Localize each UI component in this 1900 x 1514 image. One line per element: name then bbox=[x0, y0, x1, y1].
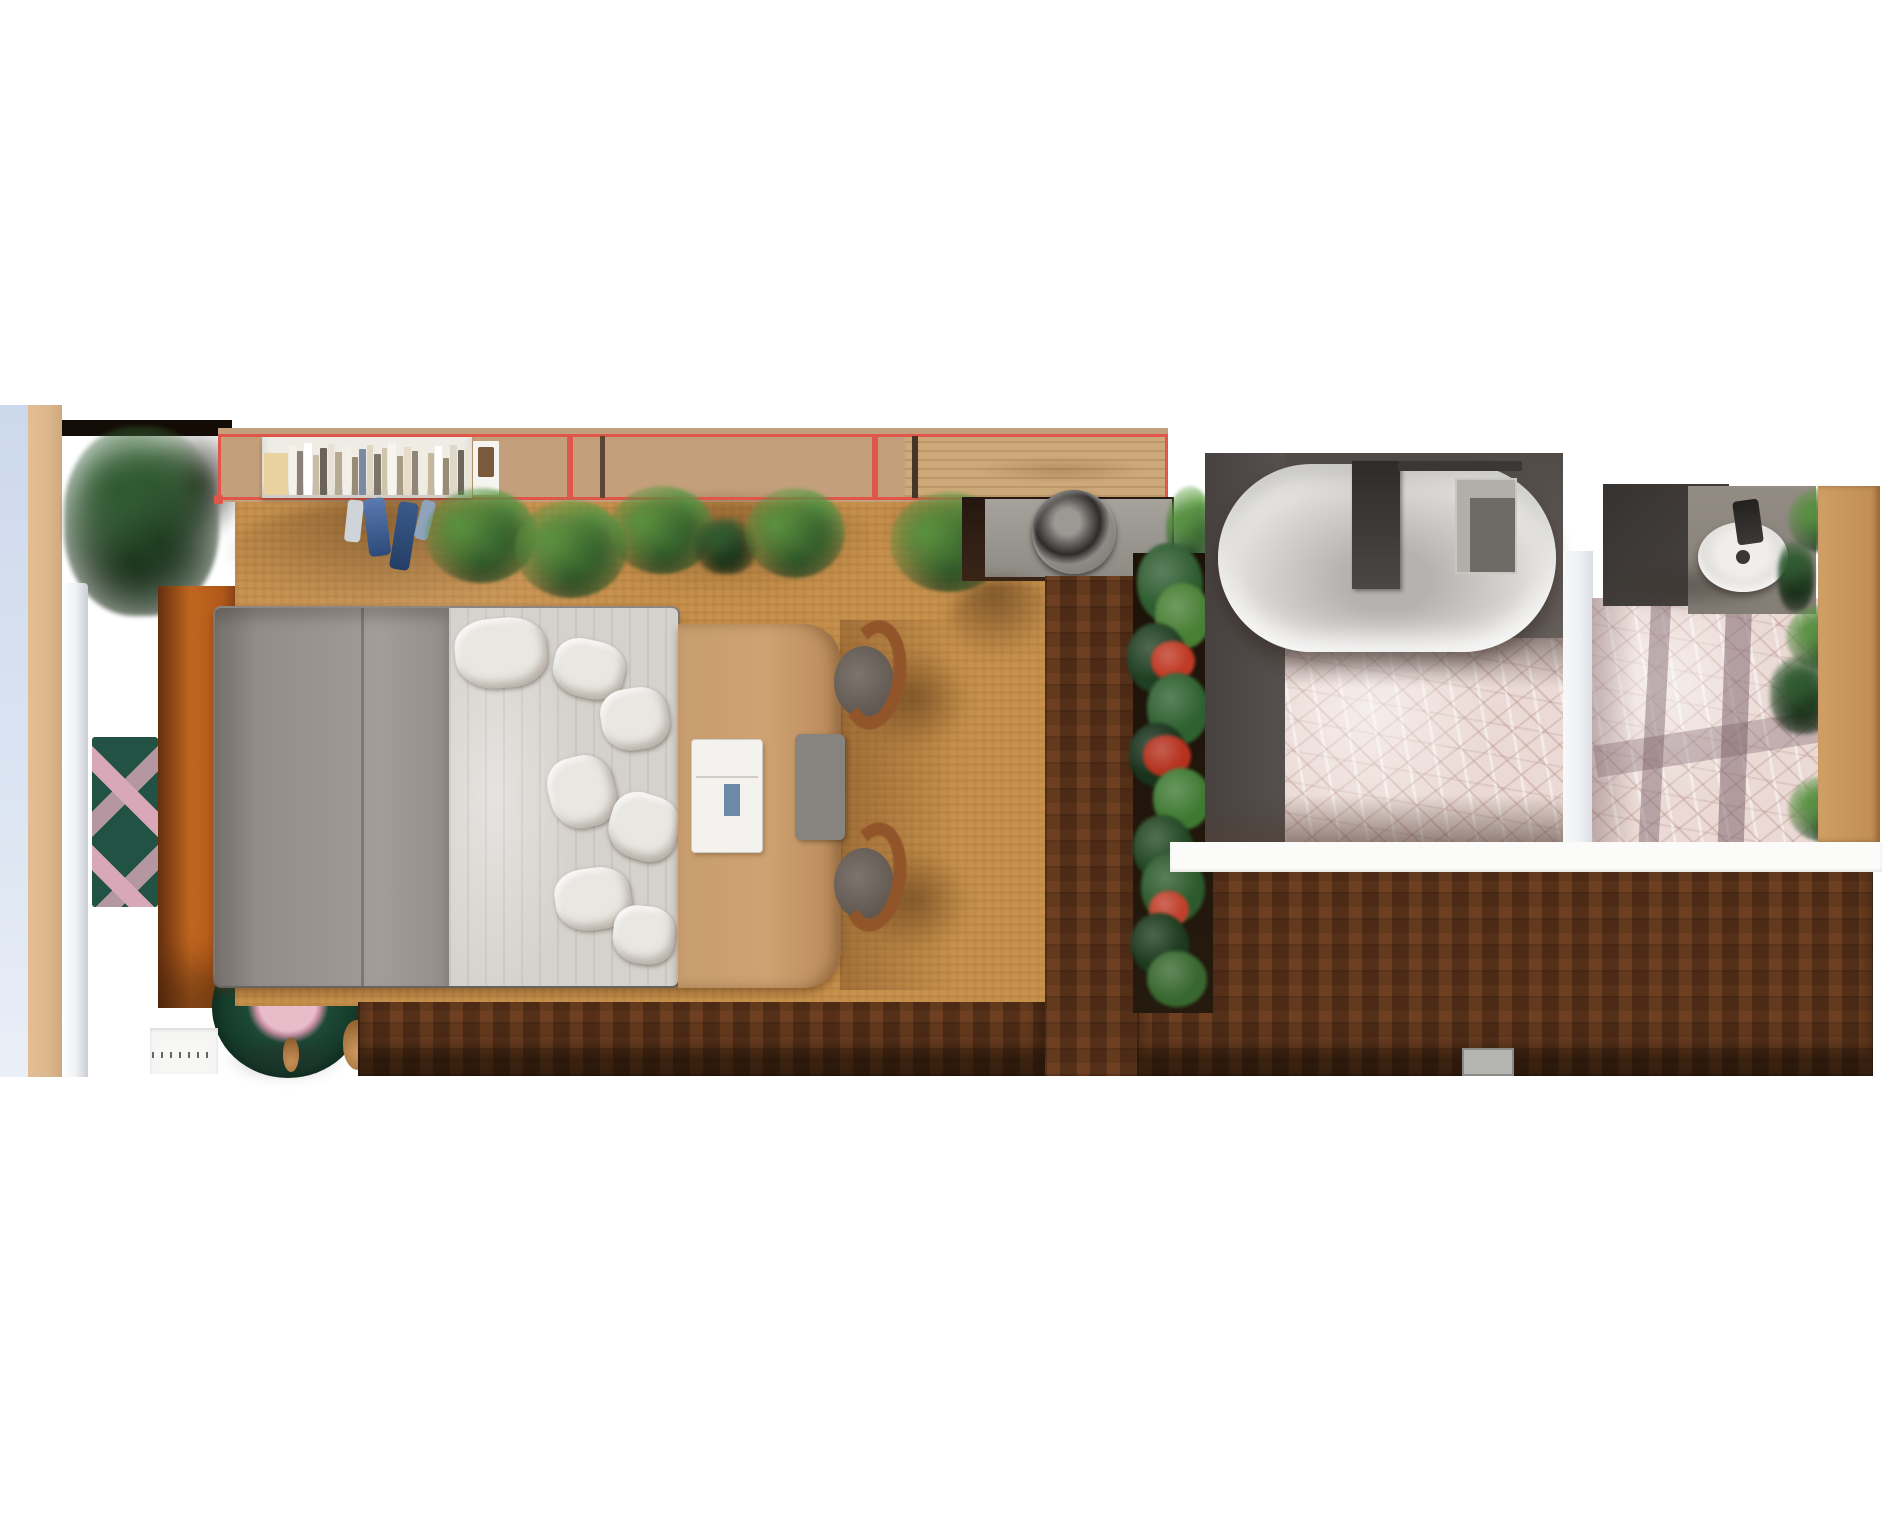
chevron-rug[interactable] bbox=[92, 737, 158, 907]
book-spine bbox=[428, 453, 434, 495]
laptop[interactable] bbox=[692, 740, 762, 852]
book-spine bbox=[304, 443, 312, 495]
book-spine bbox=[388, 443, 396, 495]
book-spine bbox=[335, 452, 342, 495]
washer-shadow bbox=[950, 578, 1060, 658]
shelf-pole-2 bbox=[912, 436, 918, 498]
book-spine bbox=[419, 444, 427, 495]
selection-box-segment-2[interactable] bbox=[570, 434, 875, 500]
book-spine bbox=[397, 456, 403, 495]
powder-right-wall bbox=[1818, 486, 1880, 842]
book-spine bbox=[435, 446, 442, 495]
cloth-white bbox=[344, 499, 364, 542]
framed-picture bbox=[478, 447, 494, 477]
book-spine bbox=[343, 446, 351, 495]
shelf-pole-1 bbox=[600, 436, 605, 498]
book-spine bbox=[374, 454, 381, 495]
selection-resize-handle[interactable] bbox=[214, 495, 223, 504]
book-spine bbox=[320, 448, 327, 495]
stool-leg-small[interactable] bbox=[283, 1038, 299, 1072]
book-spine bbox=[382, 448, 387, 495]
book-spine bbox=[450, 445, 457, 495]
book-spine bbox=[328, 444, 334, 495]
vertical-planter[interactable] bbox=[1133, 553, 1213, 1013]
door-frame[interactable] bbox=[62, 583, 88, 1077]
book-spine bbox=[367, 445, 373, 495]
book-spine bbox=[443, 458, 449, 495]
sill-scale-ticks bbox=[152, 1052, 214, 1058]
tub-rail bbox=[1398, 461, 1522, 471]
parquet-hallway[interactable] bbox=[1137, 868, 1873, 1076]
book-spine bbox=[352, 457, 358, 495]
book-spine bbox=[289, 445, 296, 495]
book-row bbox=[262, 437, 472, 498]
tub-bench-inner bbox=[1470, 498, 1515, 572]
duvet-fold-line bbox=[361, 608, 364, 986]
powder-plant-vine[interactable] bbox=[1778, 540, 1814, 612]
chair-seat-under-desk[interactable] bbox=[795, 734, 845, 840]
book-spine bbox=[473, 441, 499, 495]
book-spine bbox=[297, 451, 303, 495]
counter-shelf[interactable] bbox=[905, 437, 1165, 497]
book-spine bbox=[458, 450, 464, 495]
doormat[interactable] bbox=[1462, 1048, 1514, 1076]
book-spine bbox=[264, 453, 288, 495]
balcony-window-glass[interactable] bbox=[0, 405, 30, 1077]
bed[interactable] bbox=[213, 606, 680, 988]
bottom-wall-band bbox=[1170, 842, 1882, 872]
parquet-bedroom-bottom[interactable] bbox=[358, 1002, 1045, 1076]
washing-machine[interactable] bbox=[1032, 490, 1116, 574]
wall-plant-5[interactable] bbox=[745, 488, 845, 578]
floorplan-canvas bbox=[0, 0, 1900, 1514]
book-spine bbox=[412, 451, 418, 495]
book-spine bbox=[404, 447, 411, 495]
bed-duvet bbox=[215, 608, 449, 986]
parquet-strip-middle[interactable] bbox=[1045, 576, 1137, 1076]
divider-wall bbox=[1563, 551, 1593, 845]
balcony-wall bbox=[28, 405, 62, 1077]
book-spine bbox=[313, 455, 319, 495]
laptop-screen-chip bbox=[724, 784, 740, 816]
wall-plant-2[interactable] bbox=[515, 500, 627, 598]
cloth-denim-1 bbox=[363, 497, 392, 557]
laptop-hinge-line bbox=[696, 776, 758, 778]
bookshelf[interactable] bbox=[262, 437, 472, 498]
bath-floor-bottom-shade bbox=[1205, 795, 1563, 845]
window-sill bbox=[150, 1028, 218, 1074]
tub-faucet[interactable] bbox=[1352, 461, 1400, 589]
planter-foliage bbox=[1147, 951, 1207, 1007]
book-spine bbox=[359, 449, 366, 495]
basin-drain bbox=[1736, 550, 1750, 564]
powder-left-shade bbox=[1592, 598, 1636, 845]
